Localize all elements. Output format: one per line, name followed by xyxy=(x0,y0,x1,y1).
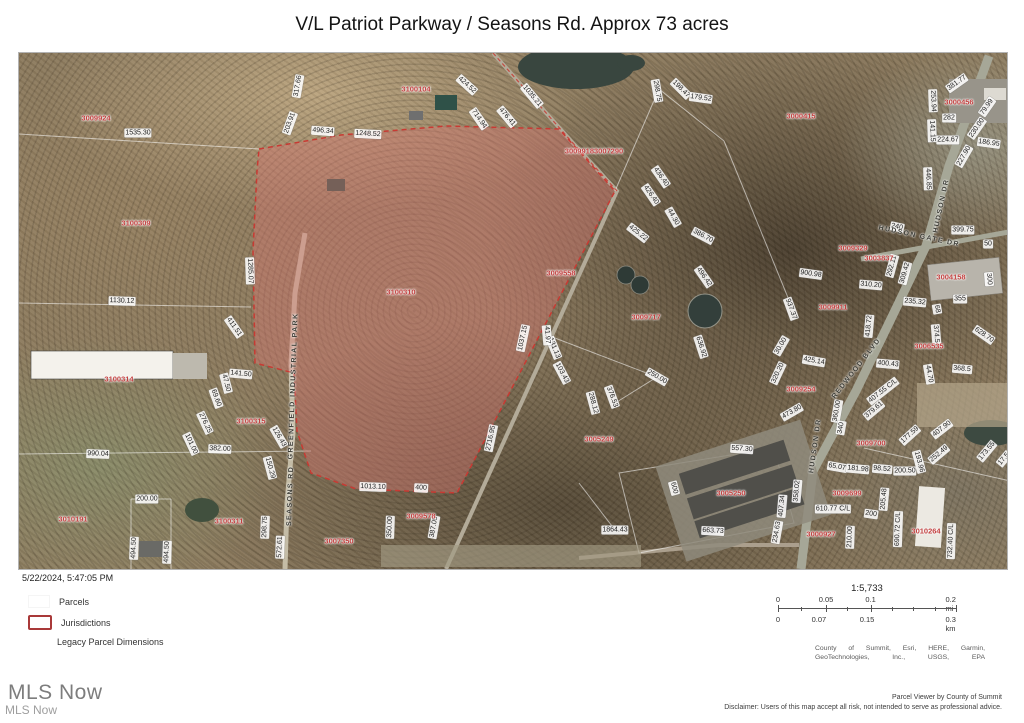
dimension-label: 288.12 xyxy=(586,391,601,416)
dimension-label: 203.91 xyxy=(282,110,298,135)
dimension-label: 411.51 xyxy=(224,315,245,339)
dimension-label: 340 xyxy=(835,420,846,435)
dimension-label: 1864.43 xyxy=(601,526,628,535)
legend-label: Legacy Parcel Dimensions xyxy=(57,637,164,647)
scale-tick-label: 0.1 xyxy=(865,595,875,604)
dimension-label: 600 xyxy=(668,480,680,496)
dimension-label: 426.40 xyxy=(641,183,662,207)
dimension-label: 181.98 xyxy=(846,463,870,474)
dimension-label: 557.30 xyxy=(730,444,754,455)
jurisdictions-swatch xyxy=(28,615,52,630)
scale-line xyxy=(778,608,956,609)
parcel-number-label: 3100315 xyxy=(236,417,265,426)
dimension-label: 1248.52 xyxy=(354,129,382,139)
dimension-label: 186.95 xyxy=(977,137,1001,149)
attribution-line: County of Summit, Esri, HERE, Garmin, xyxy=(815,645,985,654)
dimension-label: 235.32 xyxy=(903,296,927,307)
parcel-number-label: 3100314 xyxy=(104,375,133,384)
dimension-label: 937.37 xyxy=(783,296,799,321)
dimension-label: 424.52 xyxy=(455,74,478,96)
parcel-number-label: 3009924 xyxy=(81,114,110,123)
parcel-number-label: 3000927 xyxy=(806,530,835,539)
street-label: HUDSON GATE DR xyxy=(878,224,961,249)
parcel-number-label: 3005249 xyxy=(584,435,613,444)
dimension-label: 610.77 C/L xyxy=(815,505,851,514)
dimension-label: 68 xyxy=(932,303,943,314)
page-title: V/L Patriot Parkway / Seasons Rd. Approx… xyxy=(0,14,1024,36)
dimension-label: 300 xyxy=(984,272,994,286)
parcel-number-label: 3100104 xyxy=(401,85,430,94)
dimension-label: 1035.21 xyxy=(520,83,544,110)
dimension-label: 252.49 xyxy=(927,443,951,465)
dimension-label: 714.94 xyxy=(469,107,490,131)
parcel-number-label: 3009911 xyxy=(819,303,848,312)
parcel-number-label: 3009700 xyxy=(856,439,885,448)
dimension-label: 101.00 xyxy=(182,431,200,456)
dimension-label: 400.43 xyxy=(876,358,900,369)
scale-tick xyxy=(847,607,848,611)
dimension-label: 317.66 xyxy=(292,74,305,99)
parcels-swatch xyxy=(28,595,50,608)
dimension-label: 381.77 xyxy=(945,73,969,94)
scale-tick-label: 0 xyxy=(776,615,780,624)
scale-ratio: 1:5,733 xyxy=(778,583,956,594)
parcel-number-label: 3005250 xyxy=(716,489,745,498)
street-label: GREENFIELD INDUSTRIAL PARK xyxy=(287,312,300,459)
dimension-label: 473.80 xyxy=(780,402,805,422)
street-label: HUDSON DR xyxy=(808,418,824,474)
dimension-label: 276.25 xyxy=(196,410,214,435)
dimension-label: 379.61 xyxy=(862,399,886,421)
dimension-label: 425.14 xyxy=(802,355,827,368)
legend-label: Jurisdictions xyxy=(61,618,111,628)
scale-km-labels: 0 0.07 0.15 0.3 km xyxy=(778,615,956,624)
dimension-label: 436.40 xyxy=(651,165,672,189)
attribution-line: GeoTechnologies, Inc., USGS, EPA xyxy=(815,654,985,663)
scale-mi-labels: 0 0.05 0.1 0.2 mi xyxy=(778,595,956,604)
dimension-label: 150.29 xyxy=(263,456,278,481)
dimension-label: 320.20 xyxy=(769,360,787,385)
parcel-number-label: 30099183007290 xyxy=(565,147,623,156)
dimension-label: 177.59 xyxy=(898,424,921,446)
dimension-label: 407.90 xyxy=(930,418,954,440)
parcel-number-label: 3003837 xyxy=(864,254,893,263)
dimension-label: 79.99 xyxy=(978,96,997,117)
dimension-label: 234.63 xyxy=(771,520,784,545)
disclaimer-text: Disclaimer: Users of this map accept all… xyxy=(724,704,1002,711)
map-attribution: County of Summit, Esri, HERE, Garmin, Ge… xyxy=(815,645,985,662)
scale-tick-label: 0.15 xyxy=(860,615,875,624)
scale-tick-label: 0.07 xyxy=(812,615,827,624)
parcel-number-label: 3009558 xyxy=(546,269,575,278)
parcel-number-label: 3100311 xyxy=(215,517,244,526)
scale-tick xyxy=(935,607,936,611)
parcel-number-label: 3009254 xyxy=(786,385,815,394)
dimension-label: 496.42 xyxy=(694,265,715,289)
dimension-label: 407.55 C/L xyxy=(866,376,900,405)
dimension-label: 173.55 xyxy=(976,439,998,463)
dimension-label: 1535.30 xyxy=(124,129,151,138)
dimension-label: 205.48 xyxy=(878,487,889,511)
dimension-label: 399.75 xyxy=(951,226,974,235)
dimension-label: 494.50 xyxy=(129,536,139,560)
dimension-label: 200 xyxy=(864,509,879,520)
dimension-label: 358.02 xyxy=(791,479,802,503)
dimension-label: 900.98 xyxy=(799,268,823,280)
parcel-number-label: 3009329 xyxy=(838,244,867,253)
scale-tick xyxy=(778,605,779,612)
dimension-label: 350.00 xyxy=(385,515,395,539)
parcel-number-label: 3010264 xyxy=(911,527,940,536)
aerial-map: 1535.30317.66203.91496.341248.52424.5210… xyxy=(18,52,1008,570)
dimension-label: 179.52 xyxy=(689,92,713,104)
parcel-number-label: 3000456 xyxy=(944,98,973,107)
legend-item-jurisdictions: Jurisdictions xyxy=(28,615,111,630)
parcel-number-label: 3010191 xyxy=(58,515,87,524)
dimension-label: 382.00 xyxy=(208,444,232,454)
parcel-number-label: 3009717 xyxy=(631,313,660,322)
dimension-label: 141.50 xyxy=(229,368,253,379)
viewer-credit: Parcel Viewer by County of Summit xyxy=(892,694,1002,701)
legend-item-parcels: Parcels xyxy=(28,595,89,608)
scale-tick xyxy=(871,605,872,612)
legacy-swatch xyxy=(28,636,48,647)
parcel-number-label: 3100310 xyxy=(386,288,415,297)
dimension-label: 1013.10 xyxy=(359,482,387,492)
dimension-label: 572.61 xyxy=(275,535,285,559)
street-label: HUDSON DR xyxy=(932,178,951,233)
dimension-label: 376.53 xyxy=(604,384,620,409)
dimension-label: 227.90 xyxy=(954,144,974,169)
dimension-label: 368.5 xyxy=(952,364,972,375)
dimension-label: 103.43 xyxy=(553,361,572,386)
dimension-label: 309.42 xyxy=(898,261,913,286)
parcel-map-page: V/L Patriot Parkway / Seasons Rd. Approx… xyxy=(0,0,1024,723)
dimension-label: 200.00 xyxy=(135,495,158,504)
scale-bar: 0 0.05 0.1 0.2 mi 0 0.07 0.15 0.3 km xyxy=(778,595,956,629)
dimension-label: 210.00 xyxy=(845,525,855,549)
dimension-label: 400 xyxy=(414,483,428,493)
dimension-label: 732.40 C/L xyxy=(946,523,956,560)
dimension-label: 65.07 xyxy=(827,461,848,473)
map-labels: 1535.30317.66203.91496.341248.52424.5210… xyxy=(19,53,1007,569)
dimension-label: 1130.12 xyxy=(108,296,135,306)
dimension-label: 298.75 xyxy=(260,515,270,539)
dimension-label: 476.41 xyxy=(496,105,518,129)
dimension-label: 44.70 xyxy=(923,364,935,385)
dimension-label: 1285.07 xyxy=(245,257,255,285)
scale-tick xyxy=(826,605,827,612)
dimension-label: 355 xyxy=(953,295,967,304)
scale-tick xyxy=(956,605,957,612)
dimension-label: 44.30 xyxy=(664,206,682,227)
street-label: SEASONS RD xyxy=(286,466,296,527)
dimension-label: 663.73 xyxy=(701,526,725,536)
dimension-label: 425.22 xyxy=(626,222,650,244)
parcel-number-label: 3009578 xyxy=(406,512,435,521)
dimension-label: 298.75 xyxy=(651,79,664,104)
dimension-label: 69.60 xyxy=(208,387,223,408)
dimension-label: 1037.15 xyxy=(516,324,530,353)
dimension-label: 50 xyxy=(983,240,993,249)
dimension-label: 224.67 xyxy=(936,136,959,145)
dimension-label: 2716.95 xyxy=(484,424,498,453)
dimension-label: 636.92 xyxy=(693,334,709,359)
dimension-label: 494.50 xyxy=(162,540,172,564)
legend-label: Parcels xyxy=(59,597,89,607)
parcel-number-label: 3004158 xyxy=(936,273,965,282)
scale-tick-label: 0 xyxy=(776,595,780,604)
dimension-label: 407.34 xyxy=(776,494,787,518)
dimension-label: 690.72 C/L xyxy=(893,511,903,548)
dimension-label: 446.85 xyxy=(923,167,933,191)
dimension-label: 418.72 xyxy=(863,314,874,338)
dimension-label: 628.70 xyxy=(972,325,996,346)
dimension-label: 282 xyxy=(942,114,956,123)
dimension-label: 17.5 xyxy=(996,450,1008,468)
scale-tick xyxy=(892,607,893,611)
dimension-label: 386.70 xyxy=(691,227,716,246)
dimension-label: 253.94 xyxy=(928,89,938,113)
dimension-label: 496.34 xyxy=(311,126,335,137)
mls-now-watermark: MLS Now xyxy=(8,681,103,705)
scale-tick xyxy=(801,607,802,611)
dimension-label: 98.52 xyxy=(872,464,892,475)
parcel-number-label: 3006535 xyxy=(914,342,943,351)
parcel-number-label: 3000415 xyxy=(786,112,815,121)
map-timestamp: 5/22/2024, 5:47:05 PM xyxy=(22,573,113,583)
dimension-label: 250.00 xyxy=(645,367,670,387)
parcel-number-label: 3009699 xyxy=(832,489,861,498)
scale-tick xyxy=(913,607,914,611)
dimension-label: 200.50 xyxy=(893,467,916,476)
scale-tick-label: 0.3 km xyxy=(945,615,955,633)
dimension-label: 41.97 xyxy=(542,325,553,345)
scale-tick-label: 0.05 xyxy=(819,595,834,604)
legend-item-legacy-dimensions: Legacy Parcel Dimensions xyxy=(28,636,164,647)
scale-tick-label: 0.2 mi xyxy=(945,595,955,613)
dimension-label: 126.43 xyxy=(269,425,289,450)
mls-now-watermark-small: MLS Now xyxy=(5,703,57,717)
dimension-label: 990.04 xyxy=(86,449,110,459)
dimension-label: 310.20 xyxy=(859,279,883,290)
parcel-number-label: 3007350 xyxy=(324,537,353,546)
parcel-number-label: 3100309 xyxy=(121,219,150,228)
dimension-label: 30.00 xyxy=(772,335,790,356)
